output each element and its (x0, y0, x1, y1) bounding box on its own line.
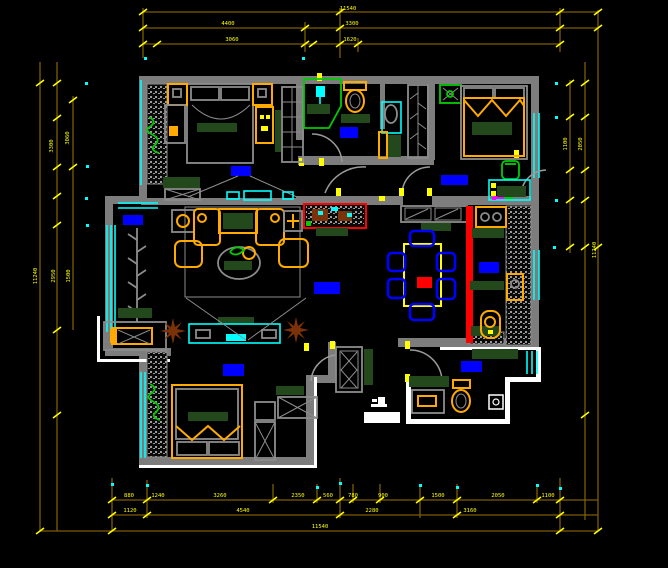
feature-wall-red (466, 206, 473, 343)
dim-text: 880 (124, 493, 134, 499)
dim-text: 3160 (463, 508, 476, 514)
nightstand (253, 84, 272, 105)
counter (472, 228, 504, 238)
leader-line (250, 176, 297, 197)
dim-text: 3060 (225, 37, 238, 43)
linen-closet (408, 85, 428, 158)
tv-cabinet (189, 317, 280, 343)
room-dining (388, 206, 467, 320)
door-arc-dining (402, 167, 430, 193)
dim-text: 900 (378, 493, 388, 499)
wall-white (314, 377, 317, 465)
counter (470, 281, 504, 290)
room-label-hall (314, 282, 340, 294)
room-label-bath1 (340, 127, 358, 138)
cabinet-shelf (316, 228, 348, 236)
wall-top (141, 76, 539, 84)
wall-kitchen-right (531, 206, 539, 346)
shelf-strip (364, 349, 373, 385)
dresser (165, 105, 185, 143)
sideboard (401, 206, 467, 231)
door-arc-hall (325, 167, 366, 193)
dim-text: 11540 (312, 524, 329, 530)
bath-shelf (472, 349, 518, 359)
dim-text: 780 (348, 493, 358, 499)
room-label-living (123, 215, 143, 225)
dim-text: 1100 (541, 493, 554, 499)
dim-text: 3300 (49, 139, 55, 152)
dim-text: 2050 (578, 137, 584, 150)
balcony-table (104, 322, 166, 350)
dim-text: 560 (323, 493, 333, 499)
wall-white (97, 316, 100, 362)
nightstand (168, 84, 187, 105)
room-bathroom1 (304, 79, 428, 158)
end-table (172, 210, 194, 232)
room-master-bedroom (147, 84, 303, 200)
dim-text: 2050 (491, 493, 504, 499)
washing-machine (489, 395, 503, 409)
dim-text: 1620 (343, 37, 356, 43)
room-label-bed3 (223, 364, 244, 376)
dim-text: 2280 (365, 508, 378, 514)
wall-bed3-right (306, 377, 314, 465)
vanity-counter (409, 376, 449, 387)
wall-white-bath (505, 379, 510, 424)
coffee-table (218, 247, 260, 279)
wall-white-bath (505, 377, 541, 382)
tv-panel (275, 110, 281, 152)
door-arc-bath2 (410, 350, 442, 380)
room-bedroom3 (148, 364, 317, 460)
room-bedroom2 (440, 85, 530, 200)
dim-text: 1500 (431, 493, 444, 499)
toilet (344, 82, 366, 112)
room-hallway (304, 204, 400, 423)
dim-text: 3260 (213, 493, 226, 499)
dim-text: 1100 (563, 137, 569, 150)
wall-white-bath (406, 419, 510, 424)
dim-text: 3300 (345, 21, 358, 27)
room-label-kitchen (479, 262, 499, 273)
scale-bar (364, 412, 400, 423)
scale-symbol (371, 397, 387, 407)
floor-mat (118, 308, 152, 318)
vanity-cabinet (412, 390, 444, 413)
room-label-bath2 (461, 361, 482, 372)
floor-plan-canvas: 11540 4400 3300 3060 1620 3300 3060 1124… (0, 0, 668, 568)
side-table (284, 211, 302, 231)
stove (476, 207, 506, 227)
decor-cabinet (304, 204, 366, 228)
double-bed (461, 86, 527, 159)
dim-text: 3060 (65, 131, 71, 144)
dim-text: 1500 (66, 269, 72, 282)
desk-chair (502, 161, 519, 179)
dim-text: 2950 (51, 269, 57, 282)
toilet (452, 380, 470, 412)
tv-cabinet-bed1 (256, 107, 273, 143)
dim-text: 11240 (592, 242, 598, 259)
single-sofa (256, 209, 284, 245)
room-label-bed2 (441, 175, 468, 185)
room-label-bed1 (231, 166, 251, 176)
dim-text: 4400 (221, 21, 234, 27)
double-bed (172, 385, 242, 458)
double-bed (187, 84, 253, 163)
dim-text: 1120 (123, 508, 136, 514)
dim-text: 11540 (340, 6, 357, 12)
floor-plan-drawing: 11540 4400 3300 3060 1620 3300 3060 1124… (0, 0, 668, 568)
dim-text: 2350 (291, 493, 304, 499)
counter (471, 326, 501, 336)
ceiling-fan-icon (440, 85, 461, 103)
dim-text: 1240 (151, 493, 164, 499)
room-living (104, 207, 309, 350)
single-sofa (194, 209, 220, 245)
wall-tv (227, 192, 239, 199)
shoe-cabinet (336, 347, 362, 392)
wall-white (139, 465, 317, 468)
bench-and-table (163, 177, 200, 200)
room-bathroom2 (409, 349, 518, 413)
dining-table (404, 244, 441, 306)
potted-plant (283, 317, 309, 343)
bath-shelf (341, 114, 370, 123)
washbasin (379, 102, 401, 158)
dim-text: 11240 (33, 268, 39, 285)
dim-text: 4540 (236, 508, 249, 514)
shower-enclosure (304, 79, 341, 128)
kitchen-counter-hatch (506, 206, 531, 345)
center-sofa (219, 209, 257, 233)
wall-right-upper (531, 76, 539, 206)
coat-rack-decor (128, 228, 146, 322)
sofa-set (172, 209, 308, 279)
